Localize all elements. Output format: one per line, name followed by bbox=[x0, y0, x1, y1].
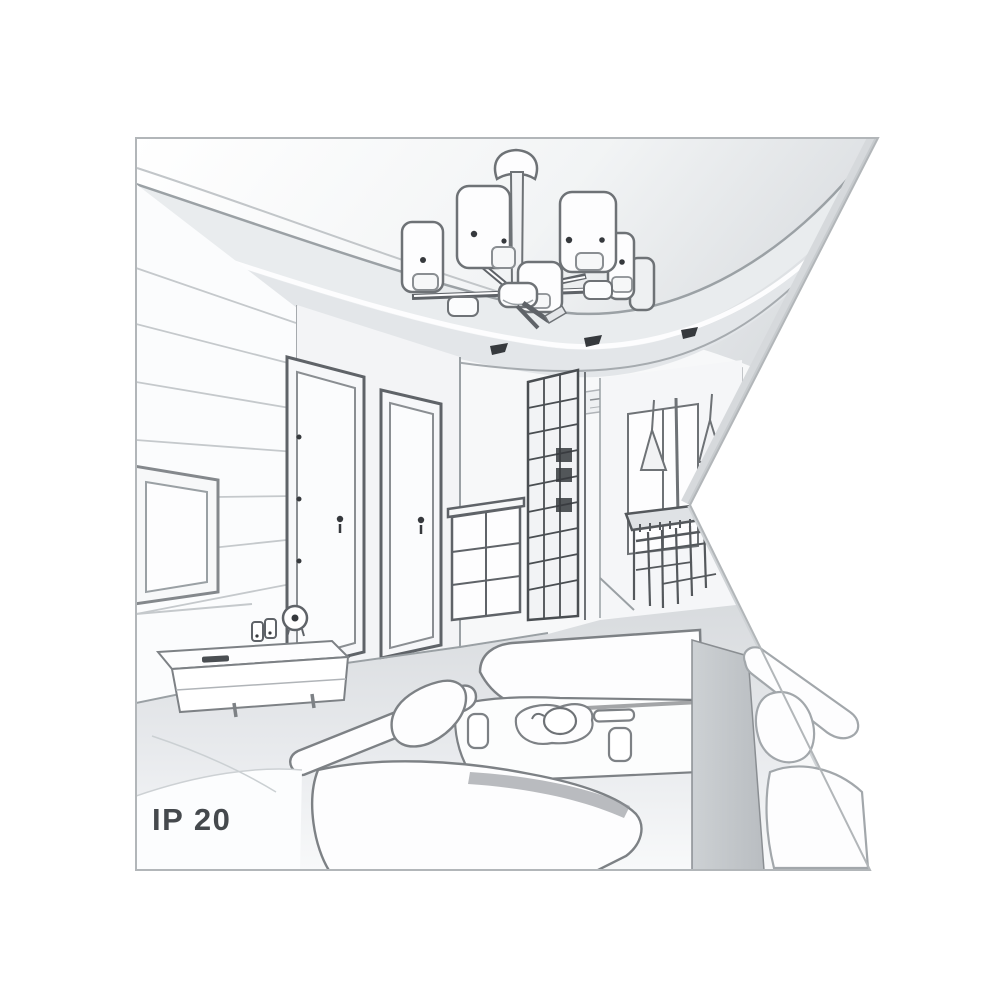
speakers bbox=[252, 619, 276, 641]
sofa-seat bbox=[767, 766, 868, 868]
kettle bbox=[544, 708, 576, 734]
remote bbox=[594, 709, 634, 721]
door-handle bbox=[418, 517, 424, 523]
chandelier-hub bbox=[499, 283, 537, 307]
door-handle bbox=[337, 516, 343, 522]
ip-rating-label: IP 20 bbox=[152, 802, 231, 838]
drawer-chest bbox=[448, 498, 524, 620]
hallway bbox=[585, 360, 742, 620]
cup bbox=[468, 714, 488, 748]
room-sketch bbox=[0, 0, 1000, 1000]
door-right bbox=[381, 390, 441, 658]
cup bbox=[609, 728, 631, 761]
product-illustration: IP 20 bbox=[0, 0, 1000, 1000]
glass-cabinet bbox=[528, 370, 578, 620]
